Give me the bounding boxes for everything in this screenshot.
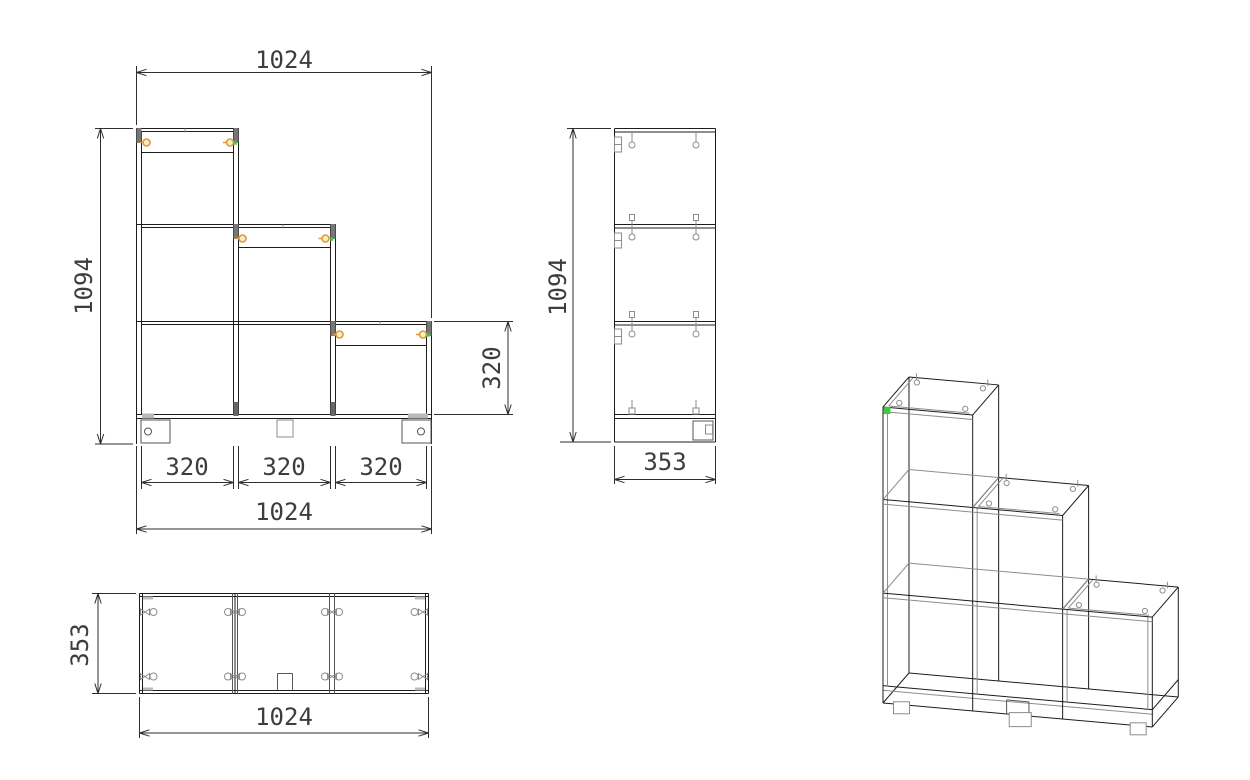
front-dim-cell-height: 320 (478, 346, 506, 389)
front-dim-cell-width-1: 320 (165, 453, 208, 481)
front-view (137, 128, 432, 444)
side-view (615, 129, 716, 443)
front-dim-height: 1094 (70, 257, 98, 315)
top-dim-width: 1024 (255, 703, 313, 731)
side-dim-height: 1094 (544, 258, 572, 316)
front-dim-cell-width-2: 320 (262, 453, 305, 481)
side-dim-depth: 353 (643, 448, 686, 476)
top-view (140, 594, 429, 694)
front-dim-width-top: 1024 (255, 46, 313, 74)
front-dim-cell-width-3: 320 (359, 453, 402, 481)
isometric-view (883, 373, 1178, 735)
technical-drawing: 1024 1094 320 320 320 320 1024 1094 353 … (0, 0, 1250, 780)
front-dim-width-bottom: 1024 (255, 498, 313, 526)
dimension-labels: 1024 1094 320 320 320 320 1024 1094 353 … (66, 46, 687, 731)
top-dim-depth: 353 (66, 623, 94, 666)
drawing-canvas: 1024 1094 320 320 320 320 1024 1094 353 … (0, 0, 1250, 780)
dimension-lines (92, 66, 716, 738)
